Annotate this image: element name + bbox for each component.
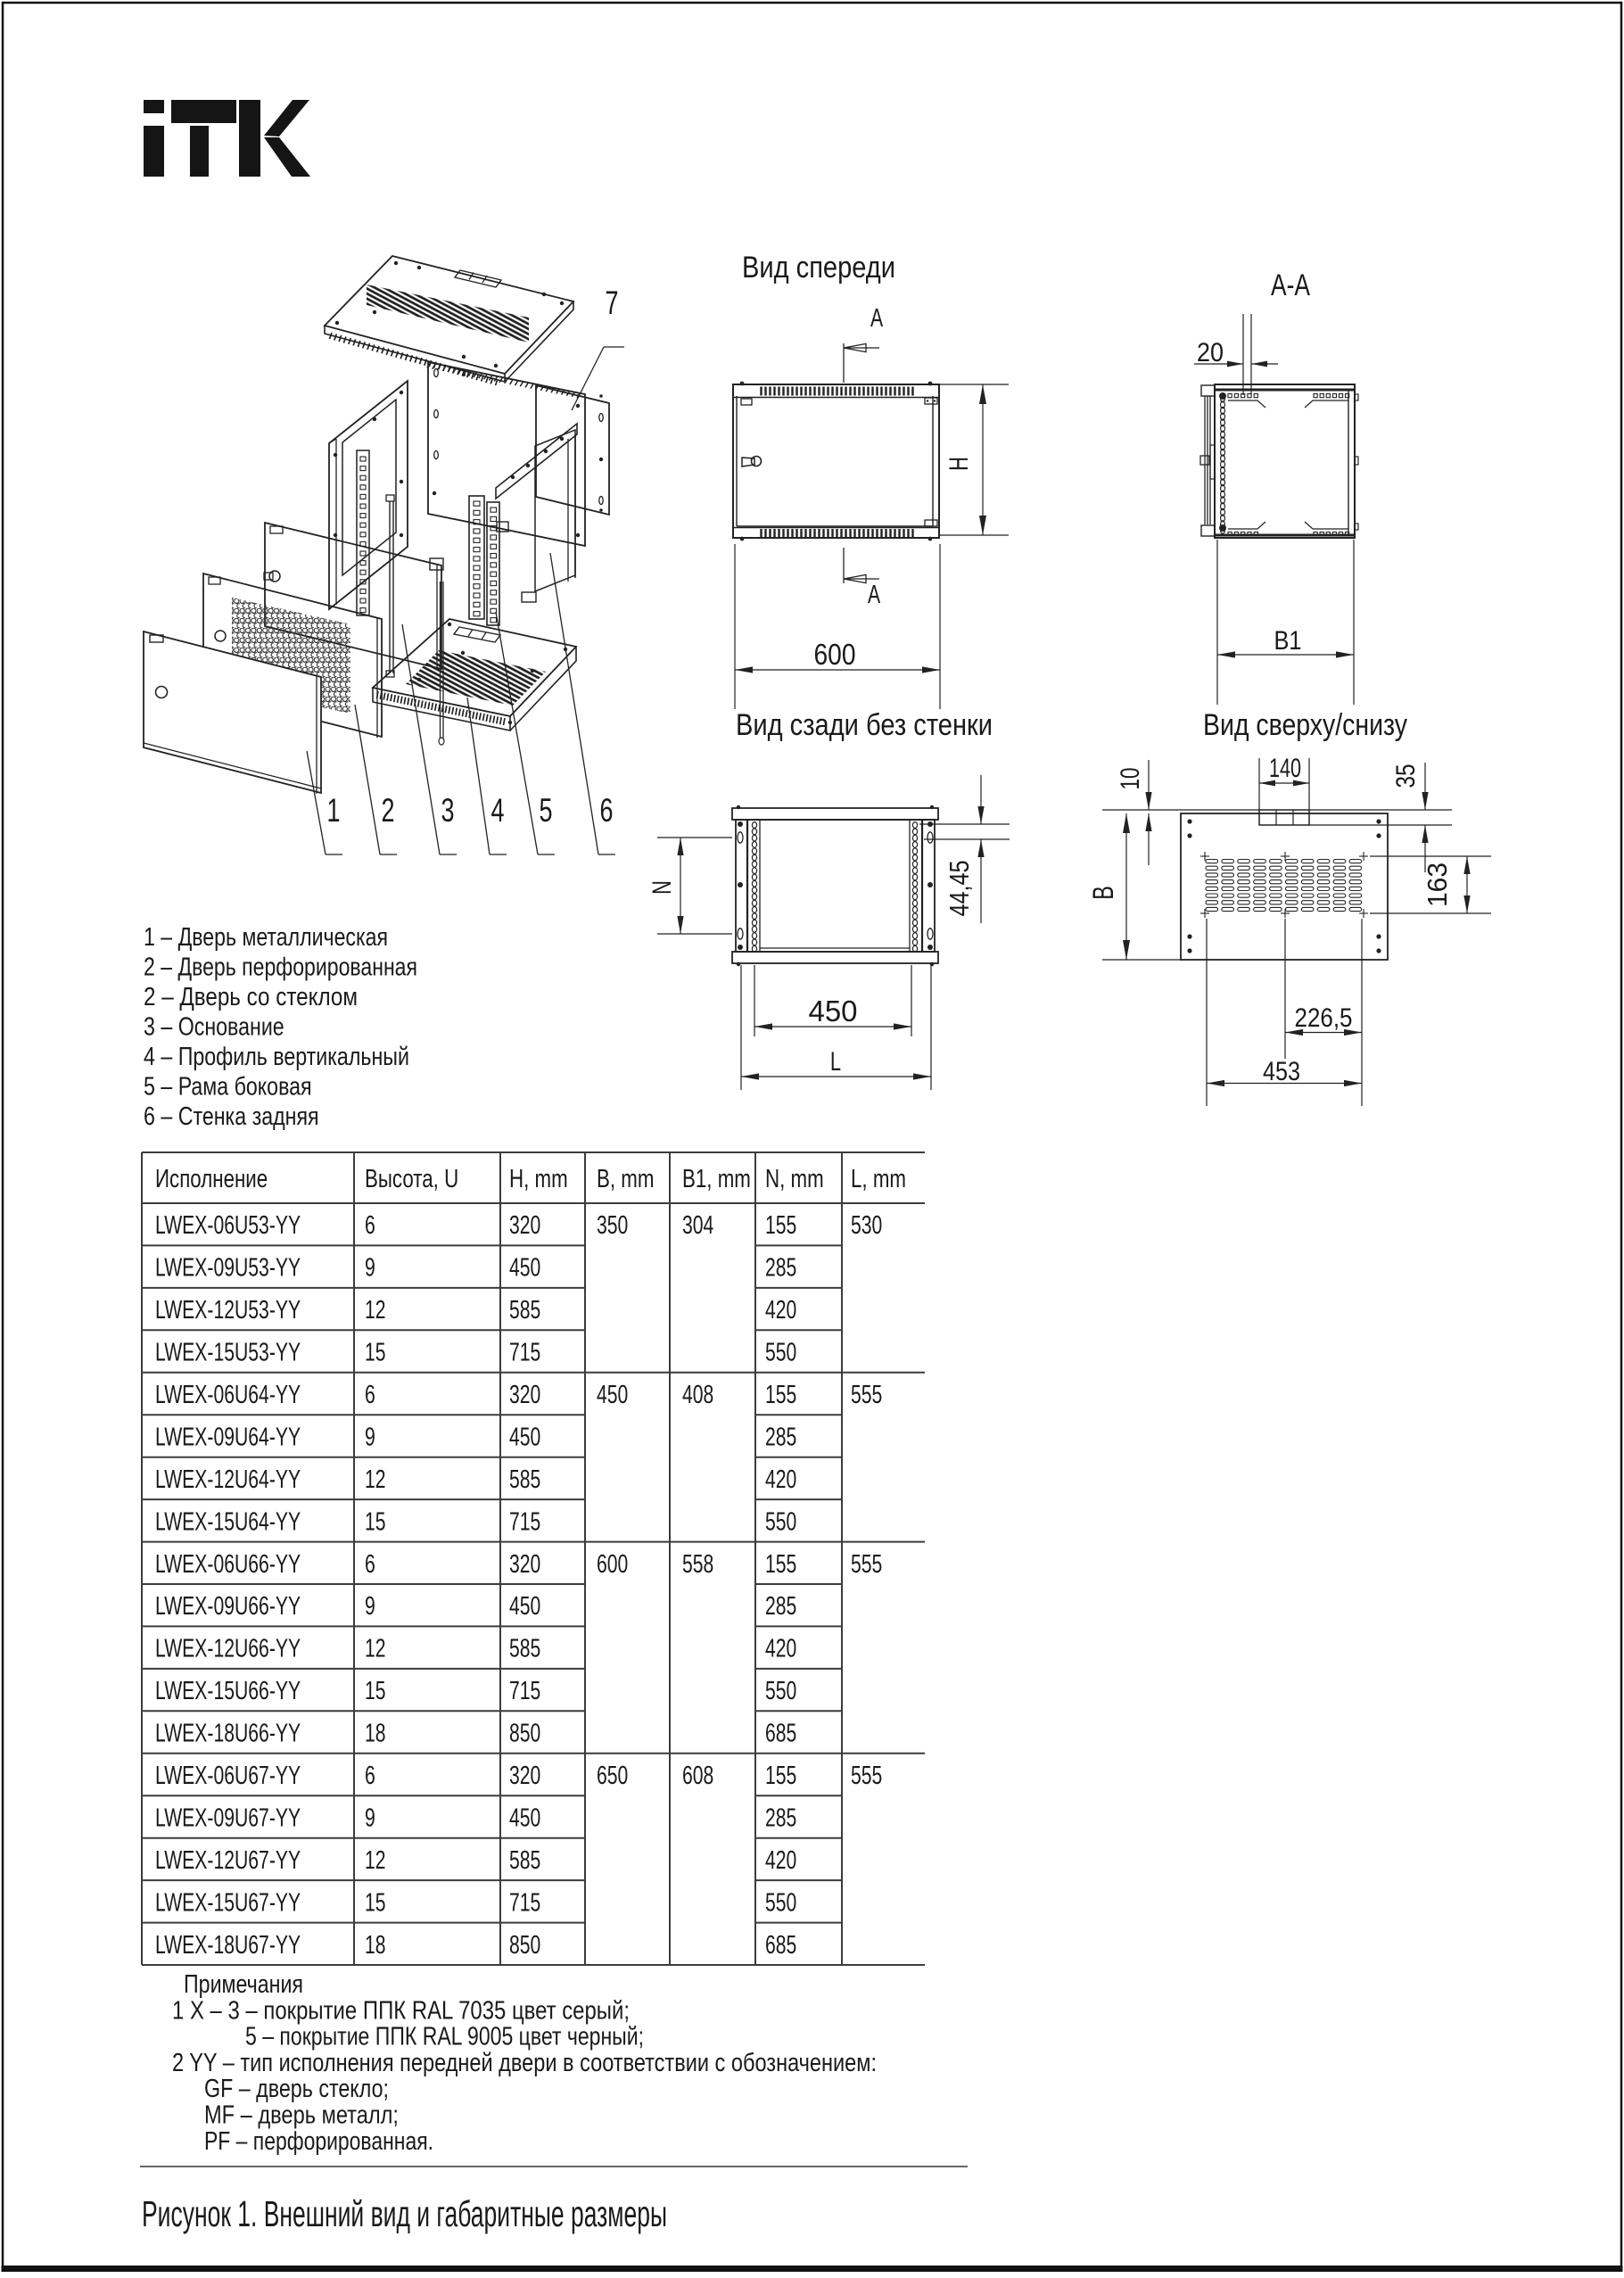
svg-text:15: 15 [365, 1888, 386, 1917]
svg-text:20: 20 [1197, 338, 1224, 367]
svg-text:L: L [830, 1047, 841, 1077]
svg-text:5 – Рама боковая: 5 – Рама боковая [144, 1073, 312, 1102]
svg-text:LWEX-15U64-YY: LWEX-15U64-YY [155, 1507, 301, 1536]
svg-text:6: 6 [365, 1381, 375, 1409]
svg-text:420: 420 [765, 1296, 796, 1325]
svg-text:685: 685 [765, 1931, 796, 1960]
svg-text:6: 6 [600, 792, 614, 829]
svg-text:450: 450 [509, 1803, 540, 1832]
svg-text:N: N [647, 880, 677, 895]
svg-text:285: 285 [765, 1592, 796, 1621]
svg-text:B, mm: B, mm [597, 1165, 655, 1193]
svg-text:420: 420 [765, 1846, 796, 1875]
svg-text:LWEX-15U66-YY: LWEX-15U66-YY [155, 1677, 301, 1705]
svg-text:420: 420 [765, 1635, 796, 1663]
svg-text:35: 35 [1391, 764, 1421, 788]
svg-text:LWEX-12U64-YY: LWEX-12U64-YY [155, 1465, 301, 1494]
svg-text:155: 155 [765, 1762, 796, 1790]
svg-text:LWEX-12U67-YY: LWEX-12U67-YY [155, 1846, 301, 1875]
svg-text:Вид сзади без стенки: Вид сзади без стенки [736, 708, 993, 742]
svg-text:N, mm: N, mm [765, 1165, 824, 1193]
svg-text:285: 285 [765, 1254, 796, 1283]
svg-text:550: 550 [765, 1677, 796, 1705]
svg-text:320: 320 [509, 1211, 540, 1240]
svg-text:A: A [870, 304, 884, 333]
svg-text:LWEX-06U64-YY: LWEX-06U64-YY [155, 1381, 301, 1409]
svg-text:15: 15 [365, 1677, 386, 1705]
svg-text:600: 600 [814, 638, 856, 671]
svg-text:PF – перфорированная.: PF – перфорированная. [204, 2127, 433, 2156]
svg-text:450: 450 [597, 1381, 628, 1409]
svg-text:LWEX-09U53-YY: LWEX-09U53-YY [155, 1254, 301, 1283]
svg-text:585: 585 [509, 1465, 540, 1494]
svg-text:585: 585 [509, 1635, 540, 1663]
svg-text:6: 6 [365, 1550, 375, 1579]
svg-text:15: 15 [365, 1339, 386, 1367]
svg-text:LWEX-09U66-YY: LWEX-09U66-YY [155, 1592, 301, 1621]
svg-text:B1, mm: B1, mm [682, 1165, 751, 1193]
svg-text:1: 1 [327, 792, 341, 829]
svg-text:LWEX-12U53-YY: LWEX-12U53-YY [155, 1296, 301, 1325]
svg-text:408: 408 [682, 1381, 713, 1409]
svg-text:420: 420 [765, 1465, 796, 1494]
svg-text:Исполнение: Исполнение [155, 1165, 268, 1193]
svg-text:Вид спереди: Вид спереди [742, 251, 895, 285]
svg-text:715: 715 [509, 1507, 540, 1536]
svg-text:163: 163 [1422, 863, 1453, 907]
svg-text:B1: B1 [1274, 626, 1302, 656]
svg-text:155: 155 [765, 1381, 796, 1409]
svg-text:140: 140 [1269, 754, 1301, 783]
svg-text:226,5: 226,5 [1295, 1003, 1353, 1033]
svg-text:Высота, U: Высота, U [365, 1165, 458, 1193]
svg-text:530: 530 [851, 1211, 882, 1240]
svg-text:2: 2 [382, 792, 395, 829]
svg-text:LWEX-15U53-YY: LWEX-15U53-YY [155, 1339, 301, 1367]
svg-text:H: H [944, 457, 974, 471]
svg-text:450: 450 [509, 1592, 540, 1621]
svg-text:Рисунок 1. Внешний вид и габар: Рисунок 1. Внешний вид и габаритные разм… [142, 2193, 667, 2234]
svg-text:715: 715 [509, 1888, 540, 1917]
svg-text:LWEX-12U66-YY: LWEX-12U66-YY [155, 1635, 301, 1663]
svg-text:608: 608 [682, 1762, 713, 1790]
svg-text:LWEX-09U67-YY: LWEX-09U67-YY [155, 1803, 301, 1832]
svg-text:9: 9 [365, 1803, 375, 1832]
svg-text:9: 9 [365, 1592, 375, 1621]
svg-text:Примечания: Примечания [184, 1970, 303, 1999]
svg-text:555: 555 [851, 1762, 882, 1790]
svg-text:4: 4 [491, 792, 505, 829]
svg-text:2 – Дверь перфорированная: 2 – Дверь перфорированная [144, 953, 417, 982]
svg-text:6 – Стенка задняя: 6 – Стенка задняя [144, 1102, 319, 1131]
svg-text:320: 320 [509, 1550, 540, 1579]
svg-text:600: 600 [597, 1550, 628, 1579]
svg-text:15: 15 [365, 1507, 386, 1536]
svg-text:285: 285 [765, 1803, 796, 1832]
svg-text:1 – Дверь металлическая: 1 – Дверь металлическая [144, 923, 388, 952]
svg-text:4 – Профиль вертикальный: 4 – Профиль вертикальный [144, 1043, 409, 1071]
svg-text:850: 850 [509, 1720, 540, 1748]
svg-text:550: 550 [765, 1507, 796, 1536]
svg-text:Вид сверху/снизу: Вид сверху/снизу [1203, 708, 1407, 742]
svg-text:12: 12 [365, 1635, 386, 1663]
svg-text:555: 555 [851, 1381, 882, 1409]
svg-text:558: 558 [682, 1550, 713, 1579]
svg-text:MF – дверь металл;: MF – дверь металл; [204, 2101, 399, 2130]
svg-text:GF – дверь стекло;: GF – дверь стекло; [204, 2075, 389, 2103]
svg-text:350: 350 [597, 1211, 628, 1240]
svg-text:12: 12 [365, 1296, 386, 1325]
svg-text:LWEX-06U53-YY: LWEX-06U53-YY [155, 1211, 301, 1240]
svg-text:18: 18 [365, 1720, 386, 1748]
svg-text:850: 850 [509, 1931, 540, 1960]
svg-text:LWEX-15U67-YY: LWEX-15U67-YY [155, 1888, 301, 1917]
svg-text:320: 320 [509, 1381, 540, 1409]
svg-text:450: 450 [809, 995, 858, 1028]
svg-text:LWEX-18U67-YY: LWEX-18U67-YY [155, 1931, 301, 1960]
svg-text:18: 18 [365, 1931, 386, 1960]
svg-text:550: 550 [765, 1339, 796, 1367]
svg-text:285: 285 [765, 1423, 796, 1451]
svg-text:450: 450 [509, 1254, 540, 1283]
svg-text:585: 585 [509, 1846, 540, 1875]
svg-text:550: 550 [765, 1888, 796, 1917]
svg-text:555: 555 [851, 1550, 882, 1579]
svg-text:LWEX-06U67-YY: LWEX-06U67-YY [155, 1762, 301, 1790]
svg-text:5 – покрытие ППК RAL 9005 цвет: 5 – покрытие ППК RAL 9005 цвет черный; [245, 2023, 644, 2051]
svg-text:12: 12 [365, 1846, 386, 1875]
svg-text:450: 450 [509, 1423, 540, 1451]
svg-text:685: 685 [765, 1720, 796, 1748]
svg-text:715: 715 [509, 1677, 540, 1705]
svg-text:B: B [1087, 886, 1119, 900]
svg-text:9: 9 [365, 1254, 375, 1283]
svg-text:2 – Дверь со стеклом: 2 – Дверь со стеклом [144, 983, 358, 1011]
svg-text:LWEX-06U66-YY: LWEX-06U66-YY [155, 1550, 301, 1579]
svg-text:585: 585 [509, 1296, 540, 1325]
svg-text:9: 9 [365, 1423, 375, 1451]
svg-text:H, mm: H, mm [509, 1165, 568, 1193]
svg-text:650: 650 [597, 1762, 628, 1790]
svg-text:7: 7 [606, 285, 619, 321]
svg-text:3 – Основание: 3 – Основание [144, 1013, 284, 1042]
svg-text:6: 6 [365, 1762, 375, 1790]
svg-text:3: 3 [441, 792, 455, 829]
svg-text:LWEX-09U64-YY: LWEX-09U64-YY [155, 1423, 301, 1451]
svg-text:155: 155 [765, 1211, 796, 1240]
svg-text:453: 453 [1263, 1057, 1300, 1086]
svg-text:A: A [868, 581, 881, 609]
svg-text:LWEX-18U66-YY: LWEX-18U66-YY [155, 1720, 301, 1748]
svg-text:A-A: A-A [1271, 268, 1310, 302]
svg-text:5: 5 [540, 792, 553, 829]
svg-text:715: 715 [509, 1339, 540, 1367]
svg-text:12: 12 [365, 1465, 386, 1494]
svg-text:10: 10 [1116, 768, 1145, 790]
svg-text:44,45: 44,45 [944, 861, 975, 917]
svg-text:320: 320 [509, 1762, 540, 1790]
svg-text:155: 155 [765, 1550, 796, 1579]
svg-text:2 YY – тип исполнения передней: 2 YY – тип исполнения передней двери в с… [172, 2049, 877, 2077]
svg-text:1 Х – 3 – покрытие ППК RAL 703: 1 Х – 3 – покрытие ППК RAL 7035 цвет сер… [172, 1996, 630, 2025]
svg-text:L, mm: L, mm [851, 1165, 906, 1193]
svg-text:6: 6 [365, 1211, 375, 1240]
svg-text:304: 304 [682, 1211, 713, 1240]
